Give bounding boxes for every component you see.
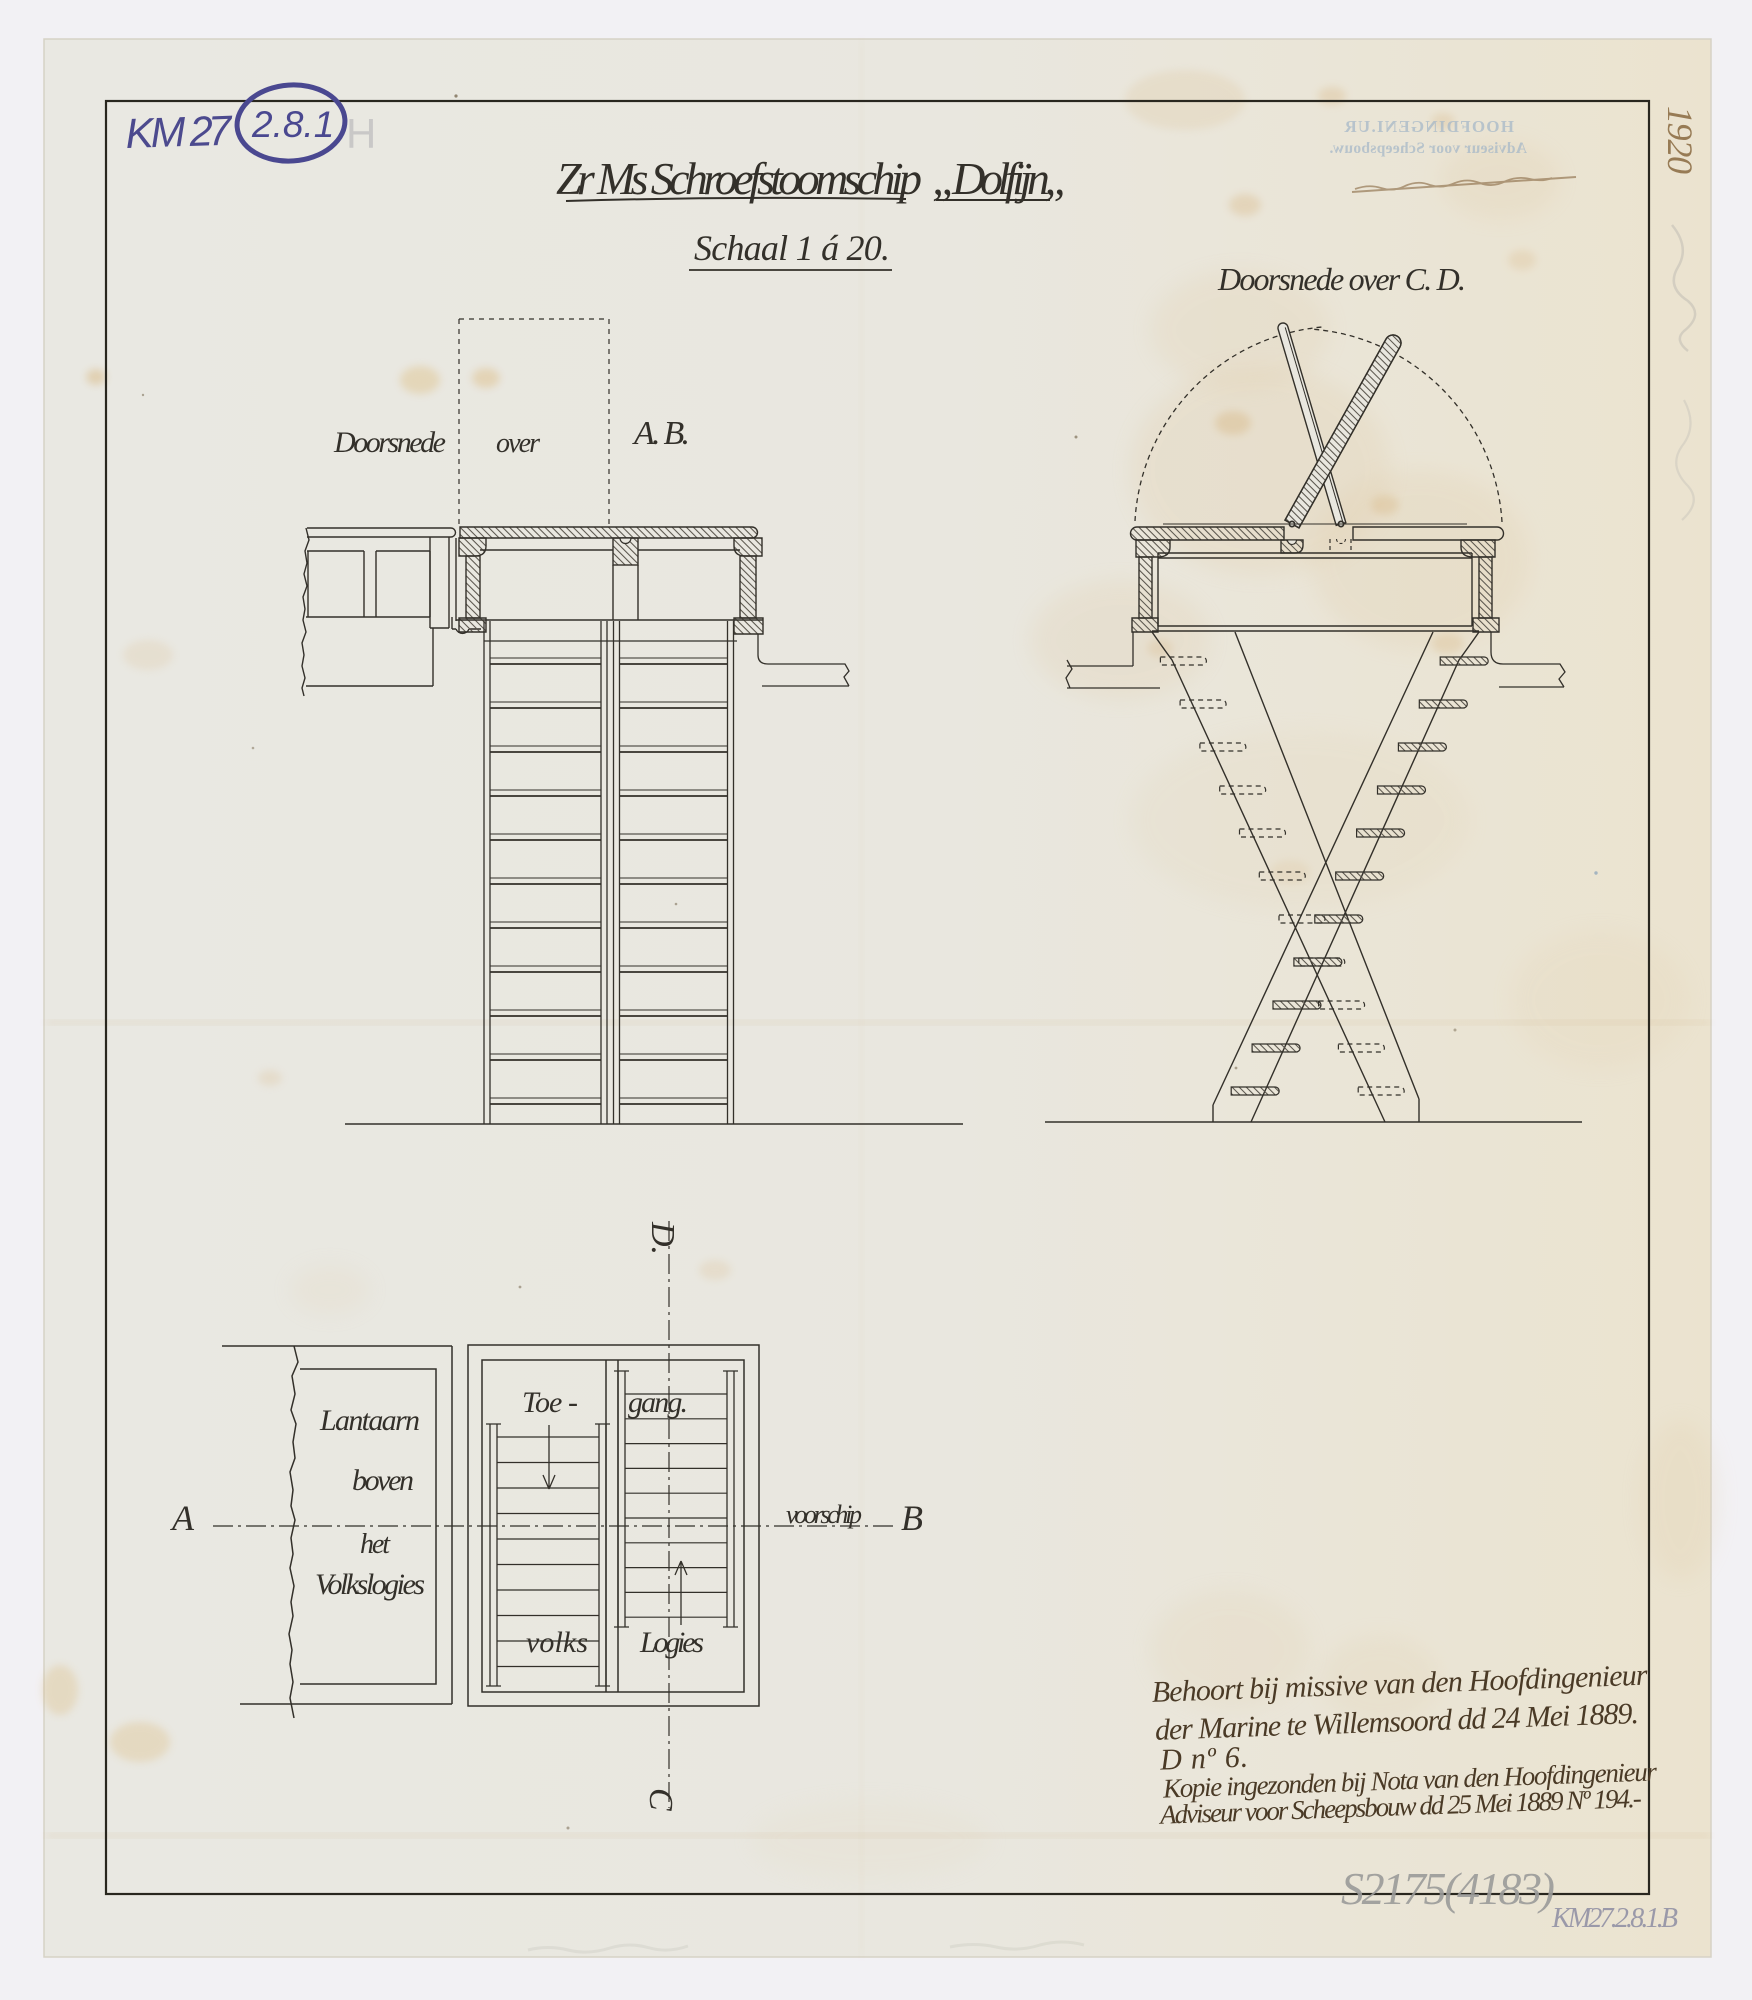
svg-text:Doorsnede over C. D.: Doorsnede over C. D.: [1217, 261, 1466, 297]
svg-text:Volkslogies: Volkslogies: [315, 1568, 425, 1601]
svg-text:Schaal 1 á 20.: Schaal 1 á 20.: [694, 228, 890, 268]
svg-text:boven: boven: [352, 1464, 414, 1497]
svg-text:KM27.2.8.1.B: KM27.2.8.1.B: [1551, 1903, 1678, 1934]
svg-text:het: het: [360, 1529, 391, 1560]
svg-text:KM: KM: [125, 108, 187, 157]
svg-text:A. B.: A. B.: [632, 415, 690, 452]
svg-text:27: 27: [188, 107, 234, 156]
svg-text:voorschip: voorschip: [786, 1500, 862, 1529]
svg-text:2.8.1: 2.8.1: [251, 104, 334, 145]
svg-text:over: over: [496, 428, 540, 459]
svg-text:H: H: [346, 110, 376, 157]
svg-text:Doorsnede: Doorsnede: [333, 426, 446, 459]
svg-text:Toe -: Toe -: [522, 1386, 578, 1419]
svg-text:Zr Ms Schroefstoomschip: Zr Ms Schroefstoomschip: [556, 153, 922, 204]
svg-text:volks: volks: [526, 1626, 588, 1659]
svg-text:C: C: [642, 1788, 679, 1811]
svg-text:Adviseur voor Scheepsbouw.: Adviseur voor Scheepsbouw.: [1329, 140, 1527, 157]
svg-text:B: B: [901, 1498, 923, 1538]
svg-text:A: A: [170, 1498, 195, 1538]
svg-text:Logies: Logies: [639, 1626, 704, 1659]
svg-text:gang.: gang.: [628, 1386, 688, 1419]
svg-text:1920: 1920: [1660, 106, 1700, 174]
svg-text:„Dolfijn„: „Dolfijn„: [932, 153, 1070, 204]
svg-text:Lantaarn: Lantaarn: [319, 1404, 420, 1437]
svg-text:S2175(4183): S2175(4183): [1341, 1863, 1555, 1914]
svg-text:HOOFDINGENI.UR: HOOFDINGENI.UR: [1342, 117, 1514, 136]
svg-text:D.: D.: [644, 1221, 681, 1255]
